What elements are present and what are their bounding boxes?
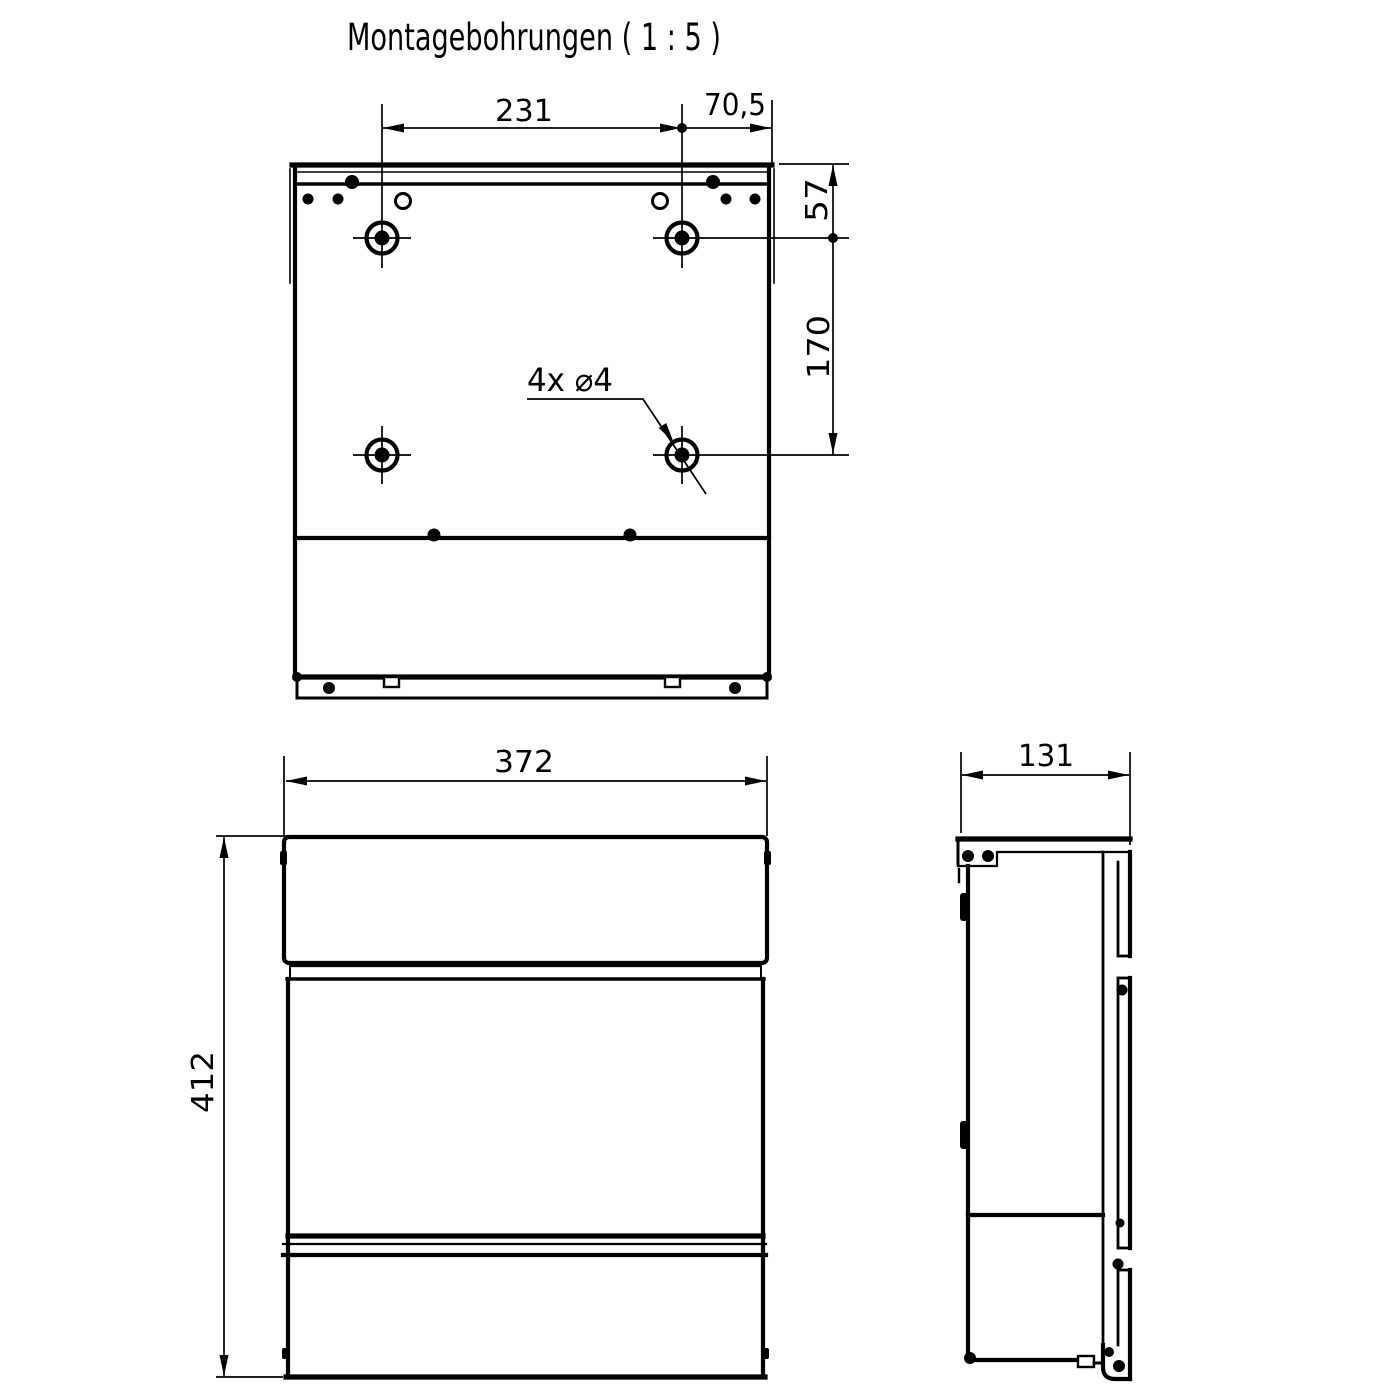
dim-text-57: 57 [800, 178, 835, 222]
lid-hinge-pin-right [764, 851, 771, 865]
dim-text-70-5: 70,5 [704, 88, 766, 123]
side-hinge-tab-upper [960, 893, 968, 921]
dim-text-170: 170 [802, 315, 837, 379]
side-hinge-tab-lower [960, 1121, 968, 1149]
dim-text-372: 372 [494, 745, 554, 780]
bottom-notch-right [665, 677, 680, 687]
dim-text-231: 231 [495, 94, 553, 129]
drawing-title: Montagebohrungen ( 1 : 5 ) [347, 16, 721, 59]
mailbox-dimension-drawing: Montagebohrungen ( 1 : 5 ) [0, 0, 1400, 1400]
callout-text-4x-d4: 4x ⌀4 [527, 361, 613, 399]
dim-text-412: 412 [186, 1051, 221, 1113]
side-bottom-notch [1078, 1356, 1094, 1367]
dim-text-131: 131 [1018, 739, 1074, 774]
technical-drawing-page: Montagebohrungen ( 1 : 5 ) [0, 0, 1400, 1400]
lid-hinge-pin-left [280, 851, 287, 865]
paper-background [0, 0, 1400, 1400]
bottom-notch-left [384, 677, 399, 687]
